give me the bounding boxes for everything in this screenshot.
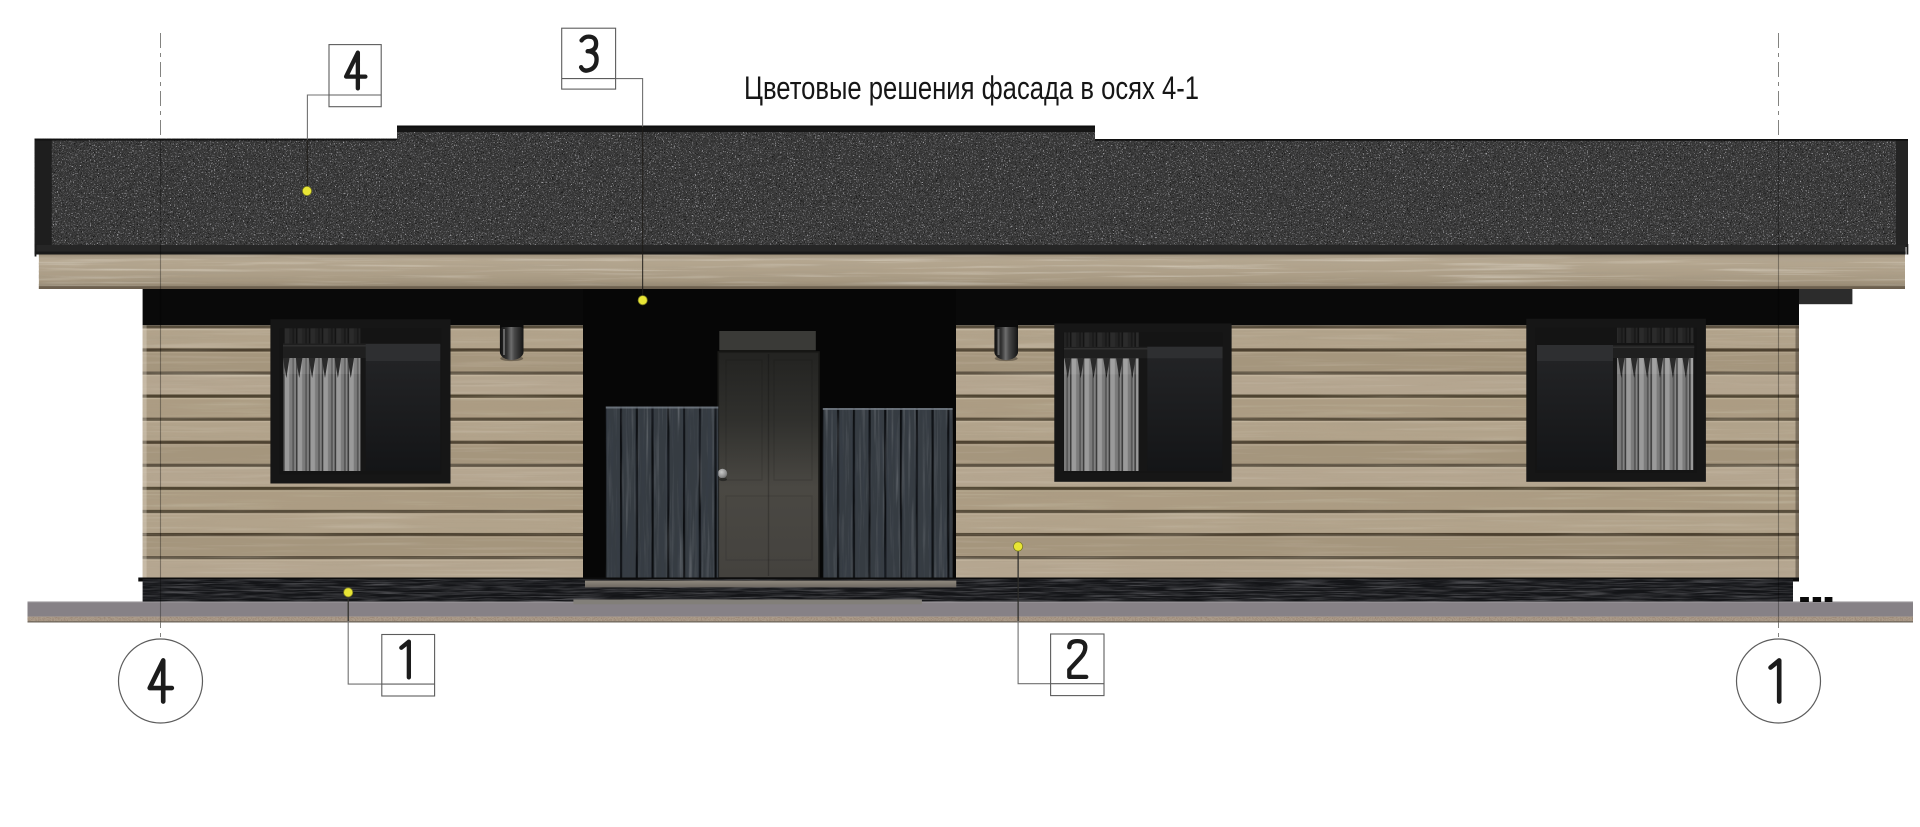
svg-text:Цветовые решения фасада в осях: Цветовые решения фасада в осях 4-1 bbox=[744, 70, 1199, 106]
